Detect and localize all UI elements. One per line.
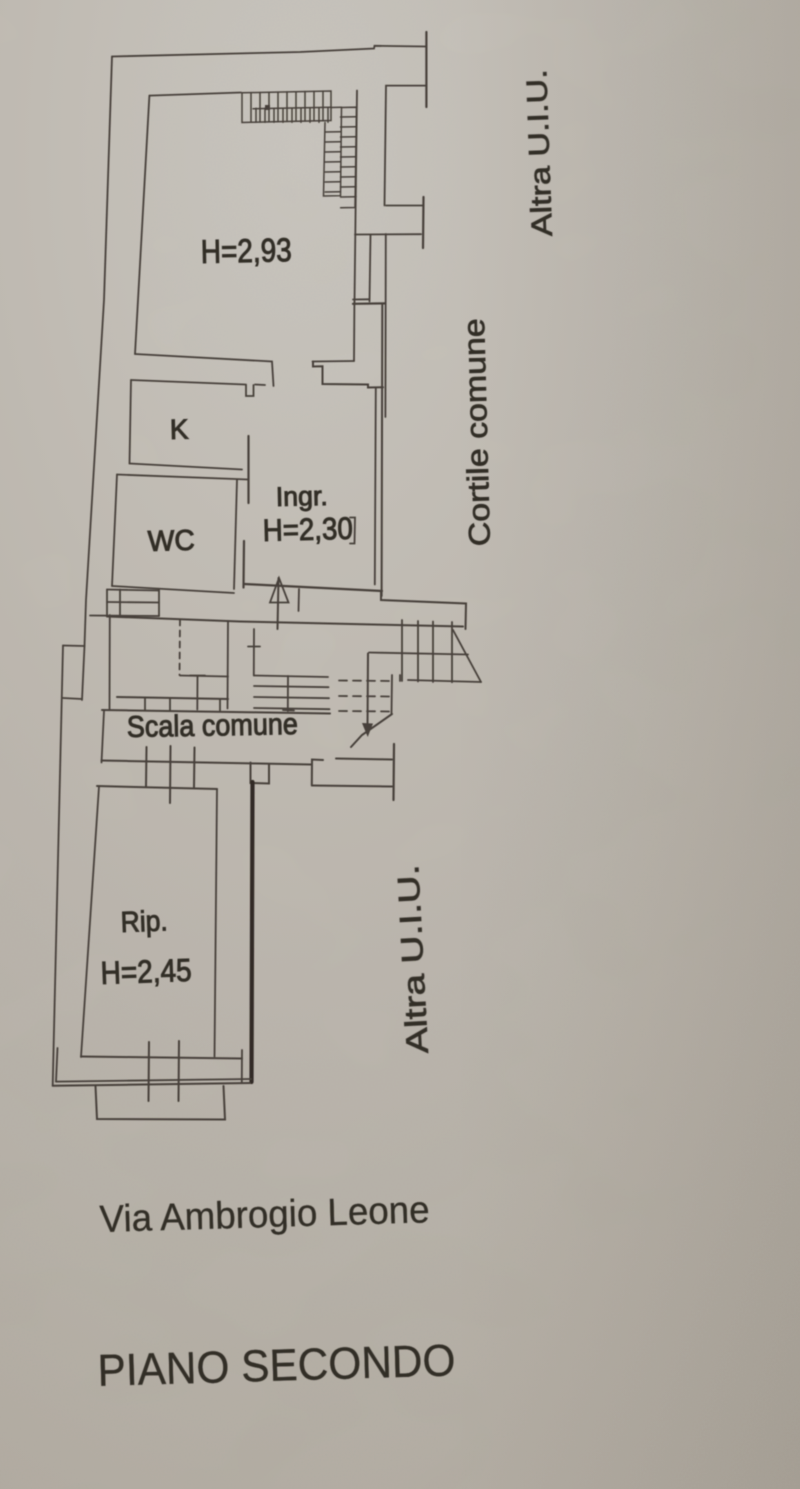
svg-text:K: K (169, 414, 189, 445)
svg-text:PIANO SECONDO: PIANO SECONDO (97, 1334, 456, 1396)
svg-text:H=2,30: H=2,30 (262, 511, 353, 548)
svg-text:Scala comune: Scala comune (127, 708, 299, 744)
svg-text:Rip.: Rip. (120, 905, 168, 939)
svg-text:H=2,93: H=2,93 (200, 231, 292, 270)
svg-text:Ingr.: Ingr. (275, 481, 328, 512)
svg-text:Altra U.I.U.: Altra U.I.U. (521, 69, 559, 237)
svg-text:Cortile comune: Cortile comune (458, 318, 497, 547)
svg-text:H=2,45: H=2,45 (100, 952, 192, 991)
svg-text:WC: WC (147, 525, 195, 558)
